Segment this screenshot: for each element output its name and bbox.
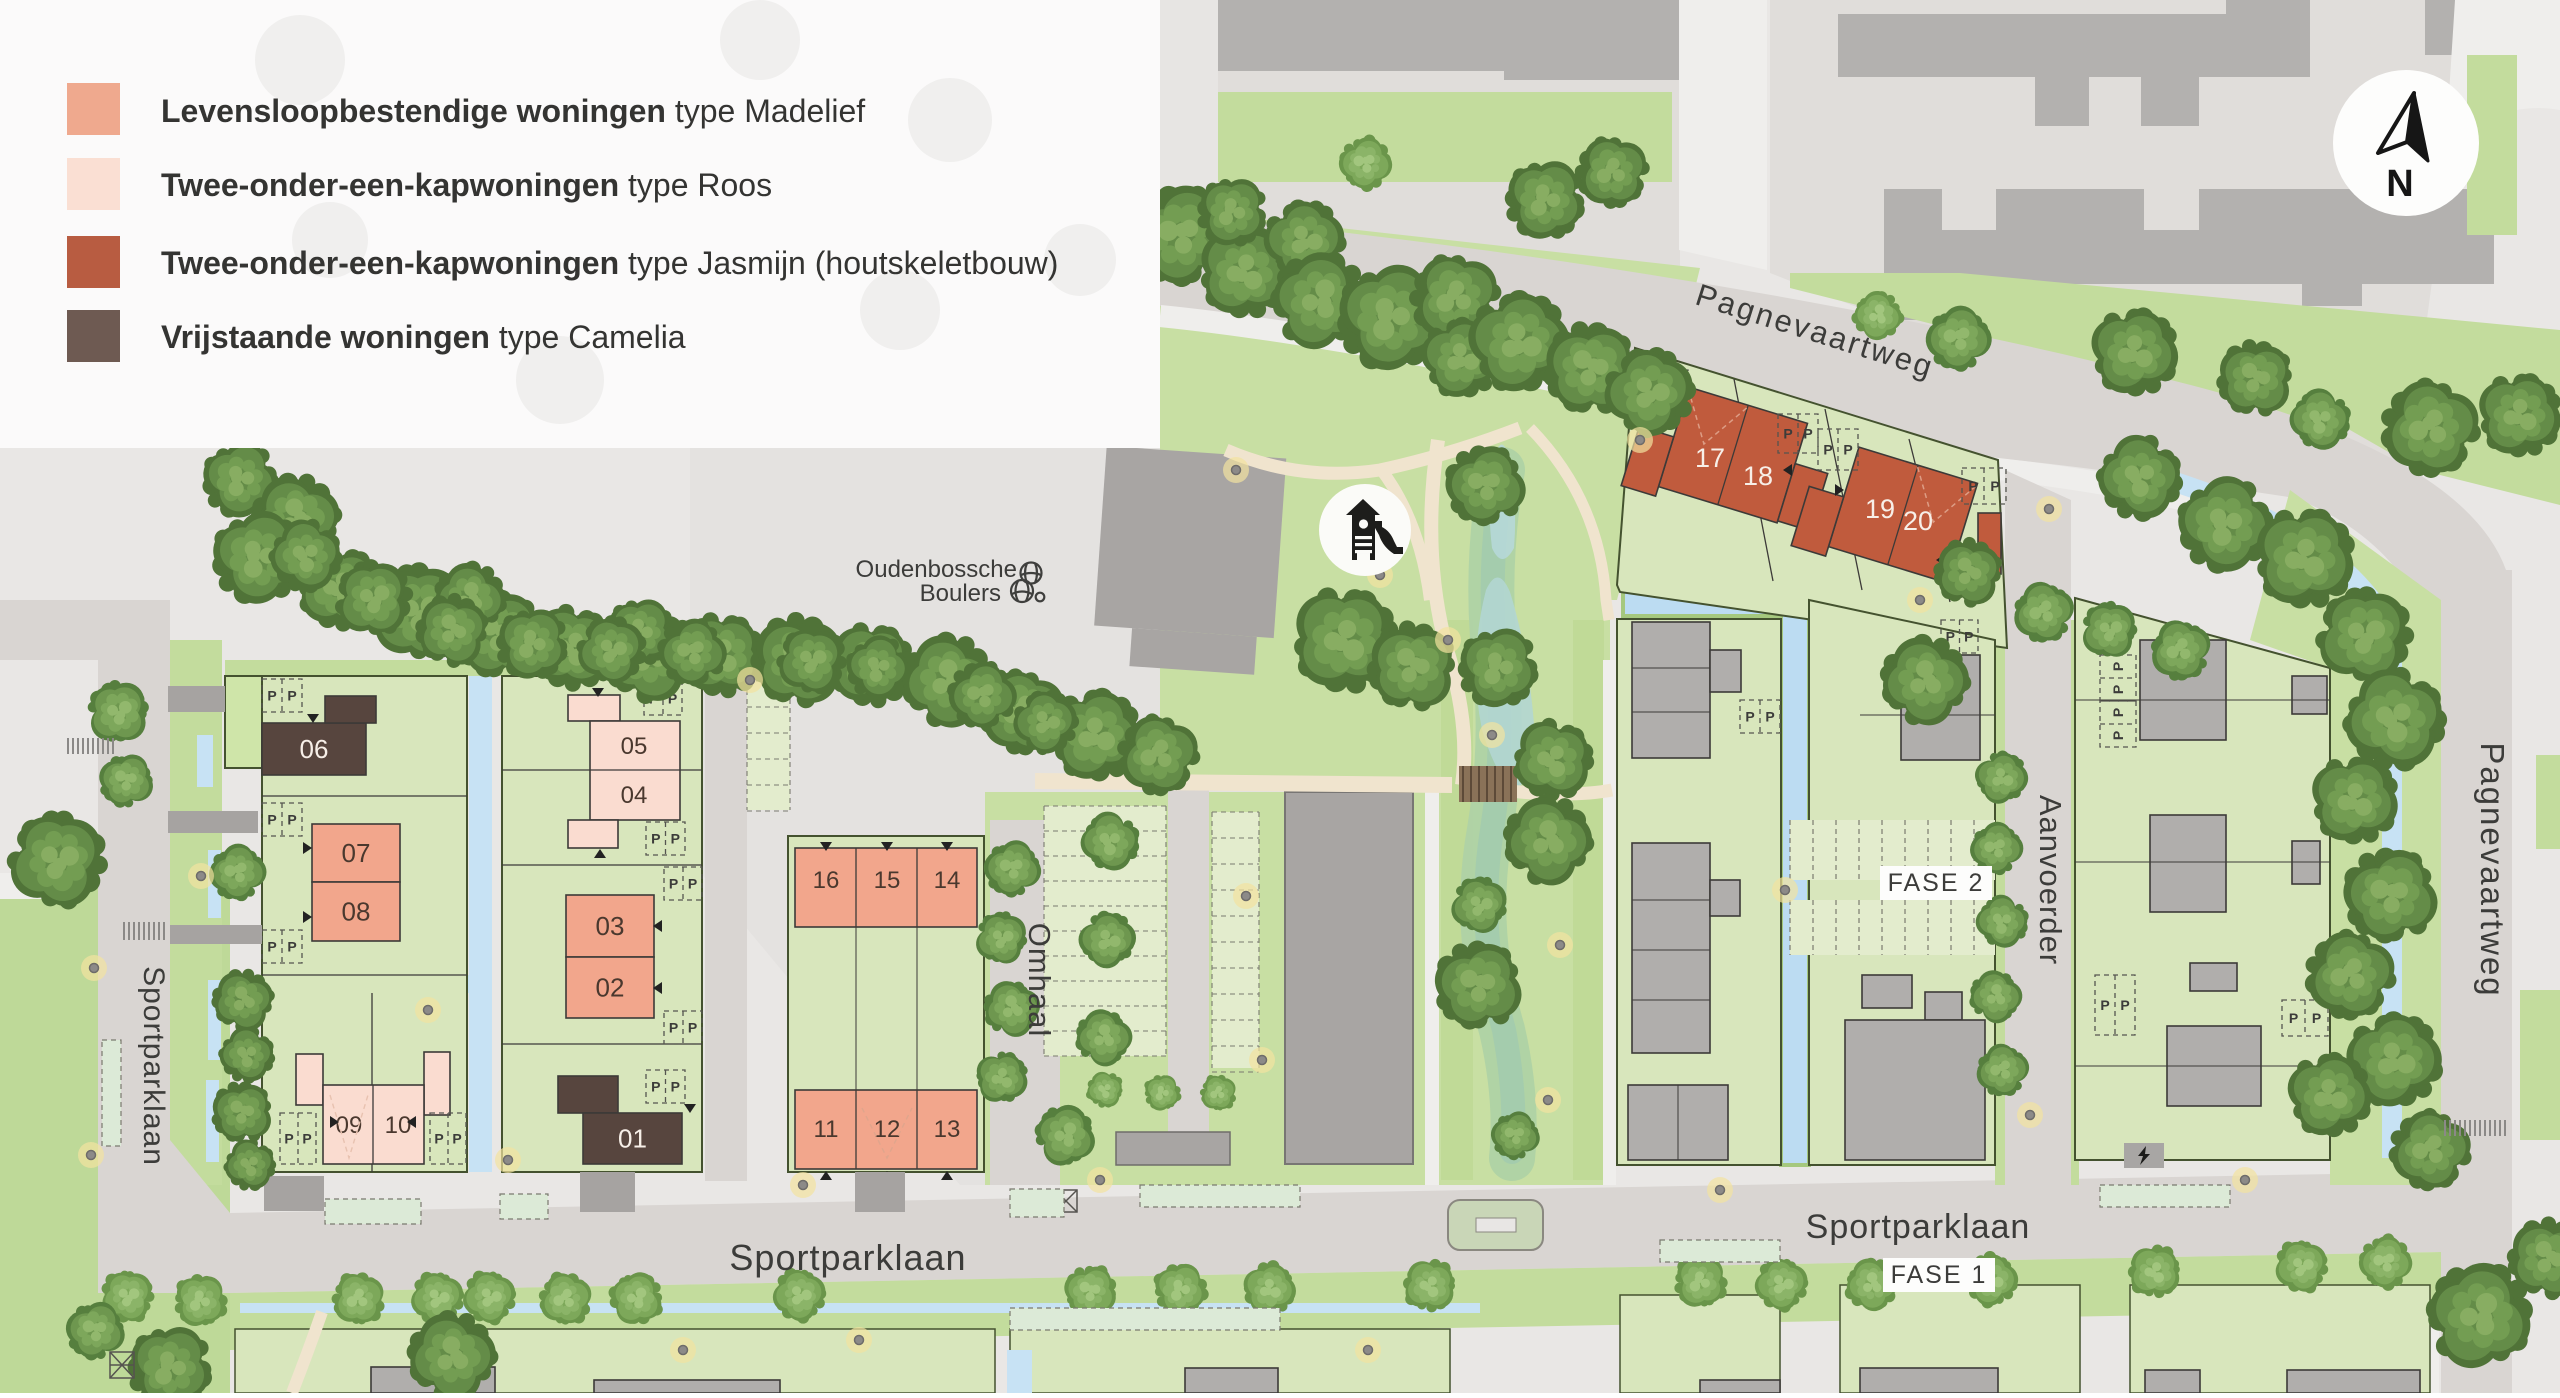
svg-text:13: 13 — [934, 1116, 961, 1143]
svg-text:P: P — [671, 831, 680, 847]
svg-text:P: P — [2110, 708, 2126, 717]
svg-text:P: P — [2100, 997, 2109, 1013]
svg-text:Omhaal: Omhaal — [1022, 923, 1057, 1038]
svg-text:P: P — [1745, 709, 1754, 725]
svg-text:N: N — [2386, 163, 2413, 205]
svg-text:Levensloopbestendige woningen: Levensloopbestendige woningen type Madel… — [161, 93, 865, 129]
svg-text:08: 08 — [342, 897, 371, 927]
svg-text:Aanvoerder: Aanvoerder — [2033, 795, 2068, 965]
svg-text:Sportparklaan: Sportparklaan — [1806, 1208, 2031, 1246]
svg-text:02: 02 — [596, 973, 625, 1003]
svg-text:P: P — [669, 876, 678, 892]
svg-text:P: P — [688, 876, 697, 892]
svg-text:11: 11 — [814, 1116, 839, 1143]
svg-text:P: P — [651, 831, 660, 847]
svg-text:P: P — [651, 1079, 660, 1095]
svg-text:04: 04 — [621, 782, 648, 809]
svg-text:P: P — [2110, 685, 2126, 694]
svg-text:15: 15 — [874, 867, 901, 894]
svg-text:Twee-onder-een-kapwoningen typ: Twee-onder-een-kapwoningen type Roos — [161, 167, 772, 203]
svg-text:12: 12 — [874, 1116, 901, 1143]
svg-text:P: P — [434, 1131, 443, 1147]
svg-text:17: 17 — [1695, 443, 1725, 473]
svg-text:P: P — [1968, 478, 1977, 494]
svg-text:P: P — [1843, 442, 1852, 458]
svg-text:P: P — [2110, 662, 2126, 671]
svg-text:P: P — [287, 688, 296, 704]
svg-text:P: P — [671, 1079, 680, 1095]
svg-text:05: 05 — [621, 733, 648, 760]
svg-text:07: 07 — [342, 838, 371, 868]
svg-text:16: 16 — [813, 867, 840, 894]
svg-text:P: P — [1765, 709, 1774, 725]
svg-text:Pagnevaartweg: Pagnevaartweg — [2474, 742, 2511, 997]
svg-text:P: P — [1803, 426, 1812, 442]
svg-text:P: P — [287, 812, 296, 828]
svg-text:P: P — [1783, 426, 1792, 442]
svg-text:P: P — [267, 939, 276, 955]
svg-text:06: 06 — [300, 734, 329, 764]
svg-text:20: 20 — [1903, 506, 1933, 536]
svg-text:P: P — [2110, 731, 2126, 740]
svg-text:P: P — [2120, 997, 2129, 1013]
svg-text:P: P — [688, 1020, 697, 1036]
svg-text:P: P — [267, 812, 276, 828]
svg-text:FASE 1: FASE 1 — [1891, 1261, 1988, 1289]
svg-text:P: P — [1990, 478, 1999, 494]
svg-text:Vrijstaande woningen type Came: Vrijstaande woningen type Camelia — [161, 319, 686, 355]
svg-text:P: P — [1964, 629, 1973, 645]
svg-text:P: P — [1823, 442, 1832, 458]
svg-text:Sportparklaan: Sportparklaan — [729, 1237, 966, 1278]
svg-text:19: 19 — [1865, 494, 1895, 524]
svg-text:Sportparklaan: Sportparklaan — [137, 966, 170, 1166]
svg-text:01: 01 — [618, 1124, 647, 1154]
svg-text:P: P — [2289, 1010, 2298, 1026]
svg-text:FASE 2: FASE 2 — [1888, 869, 1985, 897]
svg-text:P: P — [452, 1131, 461, 1147]
svg-text:P: P — [669, 1020, 678, 1036]
svg-text:10: 10 — [385, 1112, 412, 1139]
svg-text:Twee-onder-een-kapwoningen typ: Twee-onder-een-kapwoningen type Jasmijn … — [161, 245, 1058, 281]
svg-text:P: P — [284, 1131, 293, 1147]
svg-text:P: P — [267, 688, 276, 704]
svg-text:P: P — [2312, 1010, 2321, 1026]
svg-text:P: P — [287, 939, 296, 955]
svg-text:03: 03 — [596, 911, 625, 941]
svg-text:P: P — [302, 1131, 311, 1147]
svg-text:Boulers: Boulers — [920, 580, 1001, 607]
svg-text:14: 14 — [934, 867, 961, 894]
svg-text:Oudenbossche: Oudenbossche — [856, 556, 1017, 583]
svg-text:18: 18 — [1743, 461, 1773, 491]
